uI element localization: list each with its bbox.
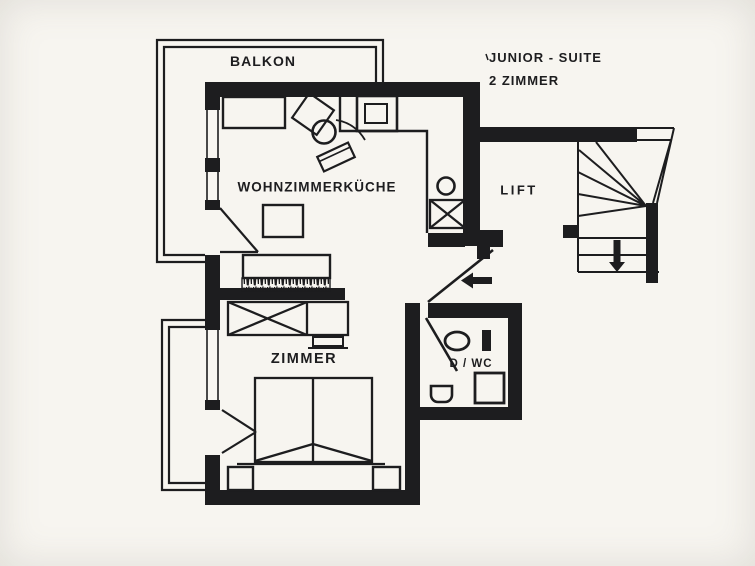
balcony-top-railing <box>157 40 383 262</box>
entry-door-swing <box>428 250 493 302</box>
wall-bedroom-right <box>405 303 420 505</box>
wall-living-top <box>205 82 480 97</box>
page-title: JUNIOR - SUITE <box>489 50 602 65</box>
page-subtitle: 2 ZIMMER <box>489 73 559 88</box>
nightstand-left <box>228 467 253 490</box>
wall-bath-right <box>508 303 522 420</box>
wall-corridor-top <box>480 127 637 142</box>
room-label-lift: LIFT <box>500 183 537 198</box>
room-label-dwc: D / WC <box>449 358 492 370</box>
stair-winder-treads <box>578 142 646 216</box>
bedroom-balcony-door-swing <box>222 410 256 453</box>
balcony-door-swing <box>220 208 258 252</box>
wall-bedroom-bottom <box>205 490 420 505</box>
window-bedroom <box>207 330 218 400</box>
wardrobe <box>228 302 348 335</box>
kitchen-counter <box>340 97 427 233</box>
dining-set <box>292 93 365 171</box>
double-bed <box>237 378 385 464</box>
scan-mark <box>486 54 488 60</box>
toilet <box>445 330 491 351</box>
stair-straight-treads <box>578 238 646 255</box>
shaft-box <box>430 200 465 228</box>
nightstand-right <box>373 467 400 490</box>
tv-stand <box>308 337 348 348</box>
window-living-2 <box>207 172 218 200</box>
wall-bath-bottom <box>413 407 522 420</box>
room-label-zimmer: ZIMMER <box>271 351 337 367</box>
window-living-1 <box>207 110 218 158</box>
boiler <box>438 178 455 195</box>
bench <box>223 97 285 128</box>
washbasin <box>431 386 452 402</box>
staircase <box>578 128 674 272</box>
room-label-balkon: BALKON <box>230 53 296 69</box>
wall-bath-top <box>428 303 510 318</box>
apartment-walls <box>205 82 658 505</box>
coffee-table <box>263 205 303 237</box>
room-label-wohnzimmerkueche: WOHNZIMMERKÜCHE <box>238 180 397 195</box>
balcony-bedroom-railing <box>162 320 205 490</box>
stove <box>357 96 397 131</box>
shower <box>475 373 504 403</box>
sofa <box>242 255 330 291</box>
floor-plan-drawing <box>0 0 755 566</box>
floor-plan: JUNIOR - SUITE 2 ZIMMER BALKON WOHNZIMME… <box>0 0 755 566</box>
entry-arrow-icon <box>461 273 492 289</box>
